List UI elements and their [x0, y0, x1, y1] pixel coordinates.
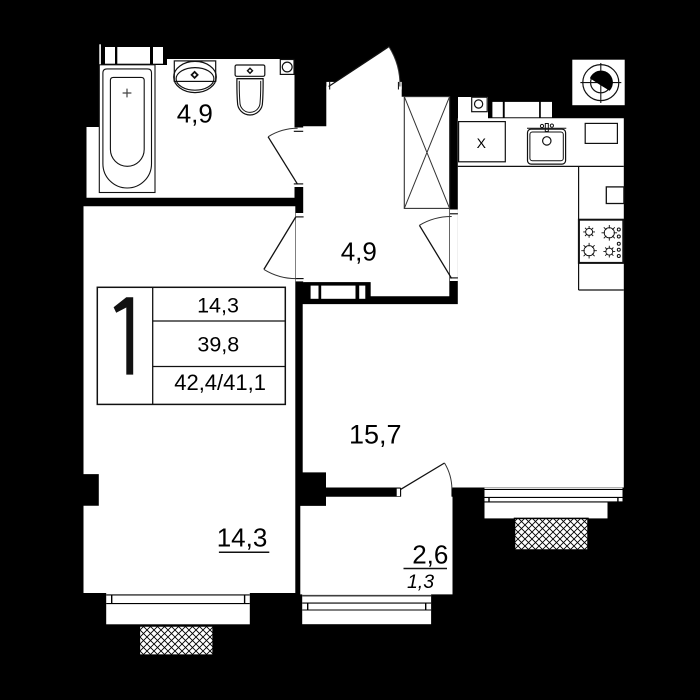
svg-text:4,9: 4,9 [341, 236, 377, 266]
svg-text:1,3: 1,3 [407, 571, 434, 593]
svg-text:2,6: 2,6 [412, 540, 448, 570]
svg-text:15,7: 15,7 [349, 420, 402, 450]
svg-text:14,3: 14,3 [197, 294, 239, 318]
svg-text:42,4/41,1: 42,4/41,1 [174, 370, 266, 395]
svg-text:4,9: 4,9 [177, 99, 213, 129]
svg-text:X: X [477, 135, 487, 151]
svg-text:39,8: 39,8 [197, 333, 239, 357]
svg-text:14,3: 14,3 [217, 522, 268, 552]
